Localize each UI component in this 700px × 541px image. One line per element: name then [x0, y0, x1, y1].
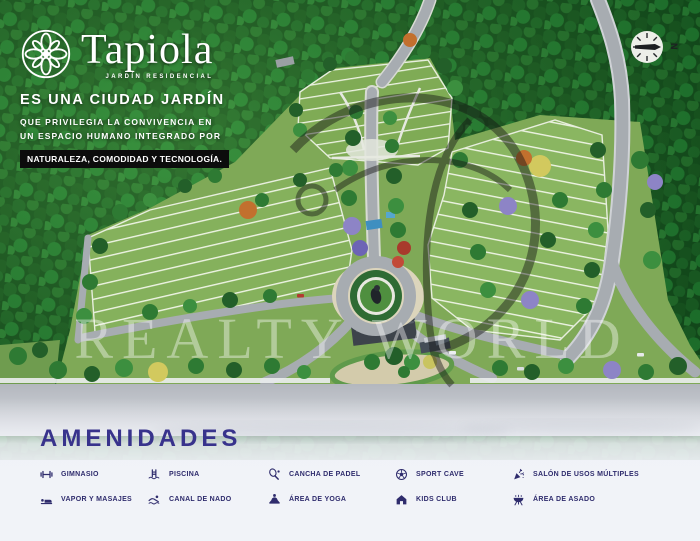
- amenity-piscina: PISCINA: [148, 463, 268, 485]
- grill-icon: [512, 493, 525, 506]
- yoga-icon: [268, 493, 281, 506]
- hero-subheadline: QUE PRIVILEGIA LA CONVIVENCIA EN UN ESPA…: [20, 115, 235, 144]
- amenity-salon-usos-multiples: SALÓN DE USOS MÚLTIPLES: [512, 463, 700, 485]
- amenity-label: KIDS CLUB: [416, 496, 457, 503]
- amenity-area-de-asado: ÁREA DE ASADO: [512, 488, 700, 510]
- swimmer-icon: [148, 493, 161, 506]
- amenity-vapor-y-masajes: VAPOR Y MASAJES: [40, 488, 148, 510]
- amenities-grid: GIMNASIO VAPOR Y MASAJES PISCIN: [40, 463, 700, 510]
- hero-subline-1: QUE PRIVILEGIA LA CONVIVENCIA EN: [20, 115, 235, 129]
- soccer-ball-icon: [395, 468, 408, 481]
- hero-badge: NATURALEZA, COMODIDAD Y TECNOLOGÍA.: [20, 150, 229, 168]
- brand-lockup: Tapiola JARDÍN RESIDENCIAL: [20, 28, 235, 80]
- amenity-label: SALÓN DE USOS MÚLTIPLES: [533, 471, 639, 478]
- hero-block: Tapiola JARDÍN RESIDENCIAL ES UNA CIUDAD…: [20, 28, 235, 168]
- massage-icon: [40, 493, 53, 506]
- hero-headline: ES UNA CIUDAD JARDÍN: [20, 92, 235, 108]
- amenity-label: GIMNASIO: [61, 471, 99, 478]
- amenity-label: CANCHA DE PADEL: [289, 471, 360, 478]
- brand-name: Tapiola: [81, 29, 213, 71]
- party-popper-icon: [512, 468, 525, 481]
- house-icon: [395, 493, 408, 506]
- amenity-label: PISCINA: [169, 471, 200, 478]
- amenity-label: CANAL DE NADO: [169, 496, 232, 503]
- pool-ladder-icon: [148, 468, 161, 481]
- hero-subline-2: UN ESPACIO HUMANO INTEGRADO POR: [20, 129, 235, 143]
- amenity-label: VAPOR Y MASAJES: [61, 496, 132, 503]
- amenity-label: SPORT CAVE: [416, 471, 464, 478]
- poster: REALTY WORLD N: [0, 0, 700, 541]
- amenities-section: AMENIDADES GIMNASIO VAPOR Y MASAJES: [0, 425, 700, 541]
- gym-icon: [40, 468, 53, 481]
- amenity-sport-cave: SPORT CAVE: [395, 463, 512, 485]
- amenity-label: ÁREA DE YOGA: [289, 496, 346, 503]
- padel-racket-icon: [268, 468, 281, 481]
- amenity-cancha-de-padel: CANCHA DE PADEL: [268, 463, 395, 485]
- compass-north-label: N: [669, 43, 679, 50]
- tapiola-rosette-logo-icon: [20, 28, 72, 80]
- watermark-text: REALTY WORLD: [74, 306, 629, 371]
- amenities-title: AMENIDADES: [40, 425, 700, 453]
- amenity-label: ÁREA DE ASADO: [533, 496, 595, 503]
- amenity-canal-de-nado: CANAL DE NADO: [148, 488, 268, 510]
- amenity-kids-club: KIDS CLUB: [395, 488, 512, 510]
- amenity-gimnasio: GIMNASIO: [40, 463, 148, 485]
- amenity-area-de-yoga: ÁREA DE YOGA: [268, 488, 395, 510]
- brand-tagline: JARDÍN RESIDENCIAL: [105, 74, 213, 80]
